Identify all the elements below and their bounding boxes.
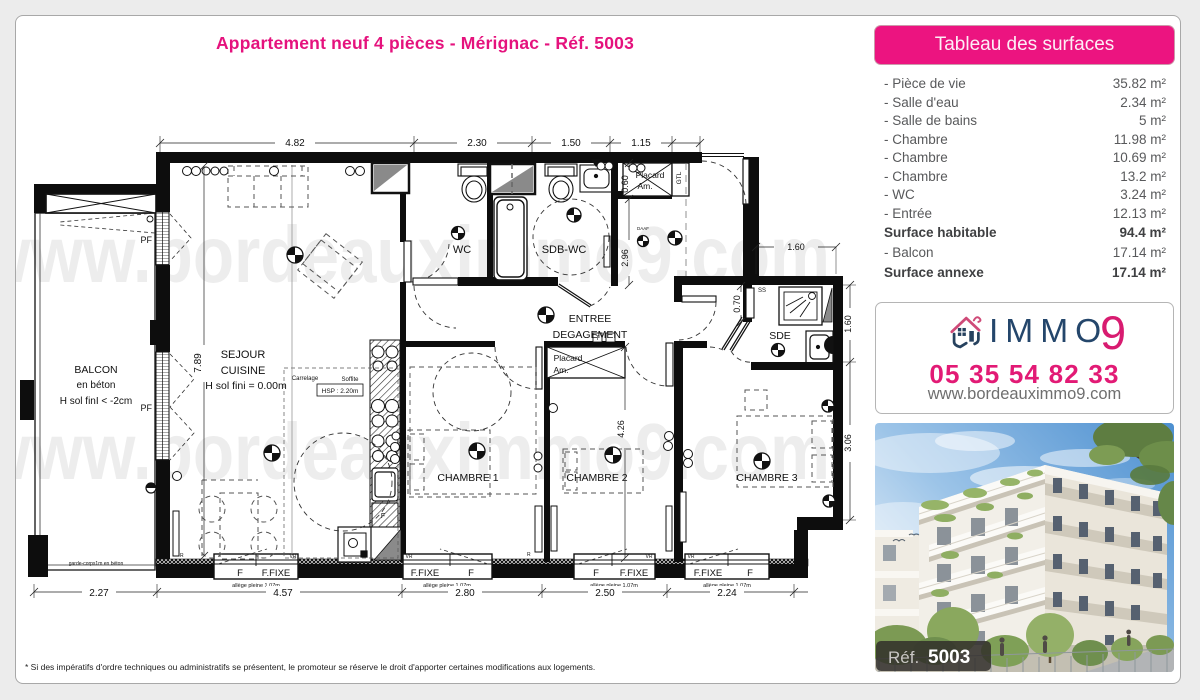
svg-text:7.89: 7.89 bbox=[193, 353, 204, 373]
svg-text:PF: PF bbox=[140, 403, 152, 413]
svg-text:VR: VR bbox=[688, 554, 695, 560]
svg-text:Réf.: Réf. bbox=[888, 648, 919, 667]
svg-text:ENTREE: ENTREE bbox=[569, 313, 612, 325]
svg-text:CHAMBRE 3: CHAMBRE 3 bbox=[736, 472, 797, 484]
svg-text:Am.: Am. bbox=[637, 181, 652, 191]
svg-text:CHAMBRE 2: CHAMBRE 2 bbox=[566, 472, 627, 484]
svg-text:1.50: 1.50 bbox=[561, 138, 581, 149]
svg-text:F: F bbox=[593, 568, 599, 579]
svg-text:BALCON: BALCON bbox=[74, 364, 117, 376]
svg-text:Placard: Placard bbox=[554, 353, 583, 363]
svg-text:Am.: Am. bbox=[553, 365, 568, 375]
svg-text:SS: SS bbox=[758, 288, 766, 294]
svg-text:CHAMBRE 1: CHAMBRE 1 bbox=[437, 472, 498, 484]
svg-text:H sol fini = 0.00m: H sol fini = 0.00m bbox=[205, 380, 287, 392]
svg-text:5003: 5003 bbox=[928, 647, 970, 668]
svg-text:Soffite: Soffite bbox=[342, 377, 360, 383]
svg-text:0.60: 0.60 bbox=[620, 175, 630, 193]
svg-text:2.30: 2.30 bbox=[467, 138, 487, 149]
svg-text:1.60: 1.60 bbox=[787, 242, 805, 252]
svg-text:HSP : 2.20m: HSP : 2.20m bbox=[322, 388, 359, 395]
svg-text:F.FIXE: F.FIXE bbox=[262, 568, 291, 579]
svg-text:F: F bbox=[381, 513, 385, 520]
svg-text:2.50: 2.50 bbox=[595, 588, 615, 599]
svg-text:Carrelage: Carrelage bbox=[292, 376, 319, 382]
svg-text:WC: WC bbox=[453, 244, 471, 256]
svg-text:F: F bbox=[468, 568, 474, 579]
svg-text:4.57: 4.57 bbox=[273, 588, 293, 599]
svg-text:H sol finI < -2cm: H sol finI < -2cm bbox=[60, 396, 133, 407]
svg-text:DAAF: DAAF bbox=[637, 226, 649, 231]
svg-text:CUISINE: CUISINE bbox=[221, 365, 266, 377]
svg-text:2.80: 2.80 bbox=[455, 588, 475, 599]
svg-text:2.27: 2.27 bbox=[89, 588, 109, 599]
svg-text:SEJOUR: SEJOUR bbox=[221, 349, 266, 361]
svg-text:4.82: 4.82 bbox=[285, 138, 305, 149]
svg-text:en béton: en béton bbox=[77, 380, 116, 391]
svg-text:PF: PF bbox=[140, 235, 152, 245]
svg-text:R: R bbox=[180, 553, 184, 559]
svg-text:www.bordeauximmo9.com: www.bordeauximmo9.com bbox=[0, 407, 830, 496]
svg-text:F.FIXE: F.FIXE bbox=[411, 568, 440, 579]
svg-text:0.70: 0.70 bbox=[732, 295, 742, 313]
svg-text:3.06: 3.06 bbox=[843, 434, 853, 452]
svg-text:F.FIXE: F.FIXE bbox=[620, 568, 649, 579]
svg-text:www.bordeauximmo9.com: www.bordeauximmo9.com bbox=[0, 210, 830, 299]
svg-text:garde-corps1m en béton: garde-corps1m en béton bbox=[69, 561, 124, 567]
svg-text:1.60: 1.60 bbox=[843, 315, 853, 333]
svg-text:F: F bbox=[237, 568, 243, 579]
svg-text:VR: VR bbox=[290, 554, 297, 560]
svg-text:SDE: SDE bbox=[769, 330, 791, 342]
svg-text:SDB-WC: SDB-WC bbox=[542, 244, 587, 256]
svg-text:2.24: 2.24 bbox=[717, 588, 737, 599]
svg-text:F: F bbox=[747, 568, 753, 579]
svg-text:VR: VR bbox=[406, 554, 413, 560]
svg-text:F.FIXE: F.FIXE bbox=[694, 568, 723, 579]
svg-text:4.26: 4.26 bbox=[616, 420, 626, 438]
svg-text:R: R bbox=[527, 552, 531, 558]
svg-text:1.15: 1.15 bbox=[631, 138, 651, 149]
svg-text:2.96: 2.96 bbox=[620, 249, 630, 267]
svg-text:VR: VR bbox=[646, 554, 653, 560]
svg-text:GTL: GTL bbox=[676, 171, 683, 184]
svg-text:DEGAGEMENT: DEGAGEMENT bbox=[553, 329, 628, 341]
